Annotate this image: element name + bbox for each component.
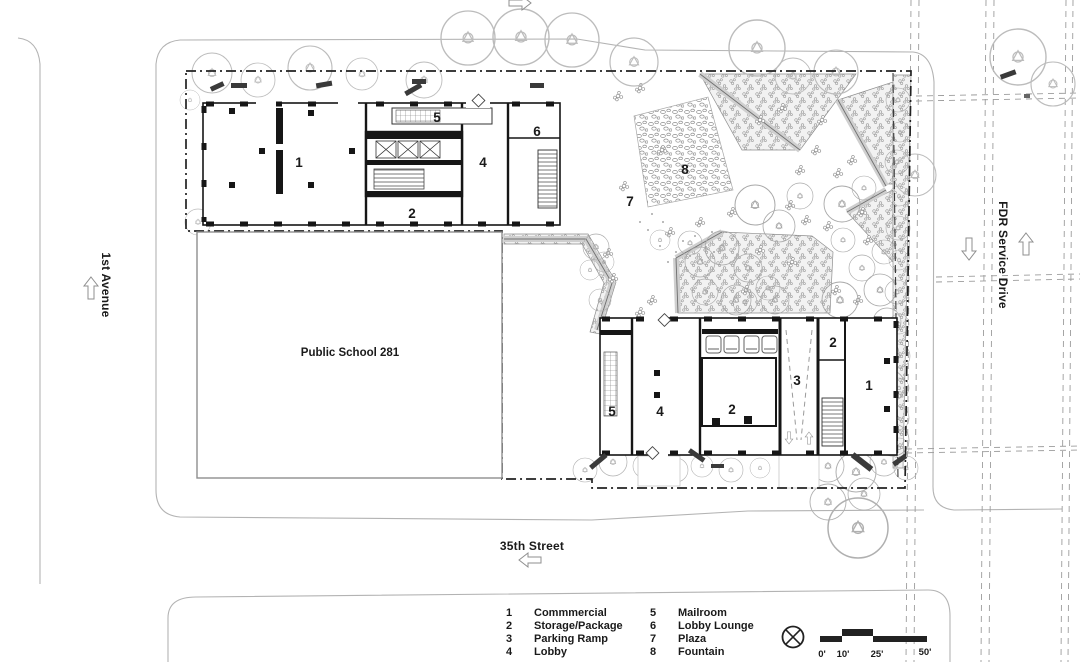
storage-room [702, 358, 776, 426]
room-label-south-2b: 2 [829, 335, 837, 350]
street-label-1st-avenue: 1st Avenue [99, 252, 113, 317]
legend-label: Parking Ramp [534, 633, 608, 645]
direction-arrow-icon-fdr-north [1019, 233, 1033, 255]
legend-label: Storage/Package [534, 620, 623, 632]
scale-bar: 0' 10' 25' 50' [818, 629, 931, 660]
scale-tick-0: 0' [818, 649, 826, 660]
site-plan-canvas: Public School 281 [0, 0, 1080, 662]
scale-tick-50: 50' [919, 647, 932, 658]
legend-label: Fountain [678, 646, 725, 658]
legend-num: 2 [506, 620, 512, 632]
legend-label: Commmercial [534, 607, 607, 619]
room-label-north-2: 2 [408, 206, 416, 221]
room-label-plaza-8: 8 [681, 162, 689, 177]
west-block-curb [18, 38, 40, 584]
room-label-north-1: 1 [295, 155, 303, 170]
legend-num: 7 [650, 633, 656, 645]
fdr-dashed-lines [906, 0, 1080, 662]
legend-num: 6 [650, 620, 656, 632]
legend-label: Plaza [678, 633, 707, 645]
room-label-north-4: 4 [479, 155, 487, 170]
room-label-south-1: 1 [865, 378, 873, 393]
site-block-curb-east [913, 52, 1062, 510]
legend-num: 3 [506, 633, 512, 645]
legend-num: 5 [650, 607, 656, 619]
room-label-south-4: 4 [656, 404, 664, 419]
scale-tick-10: 10' [837, 649, 850, 660]
south-building [600, 314, 897, 460]
room-label-plaza-7: 7 [626, 194, 634, 209]
direction-arrow-icon-fdr-south [962, 238, 976, 260]
room-label-south-5: 5 [608, 404, 616, 419]
legend-num: 8 [650, 646, 656, 658]
room-label-north-6: 6 [533, 124, 541, 139]
room-label-south-3: 3 [793, 373, 801, 388]
direction-arrow-icon-35th-street [519, 553, 541, 567]
legend-num: 4 [506, 646, 513, 658]
legend-label: Mailroom [678, 607, 727, 619]
north-arrow-icon [783, 627, 804, 648]
school-label: Public School 281 [301, 347, 400, 359]
north-stair [538, 150, 557, 208]
room-label-south-2: 2 [728, 402, 736, 417]
scale-tick-25: 25' [871, 649, 884, 660]
south-stair [822, 398, 843, 446]
school-building: Public School 281 [197, 232, 502, 478]
street-label-fdr-service-drive: FDR Service Drive [996, 201, 1010, 309]
legend-label: Lobby Lounge [678, 620, 754, 632]
north-building [203, 94, 560, 225]
street-label-35th-street: 35th Street [500, 539, 564, 553]
legend-num: 1 [506, 607, 512, 619]
room-label-north-5: 5 [433, 110, 441, 125]
legend-label: Lobby [534, 646, 568, 658]
legend: 1 Commmercial 2 Storage/Package 3 Parkin… [506, 607, 754, 658]
site-plan-svg: Public School 281 [0, 0, 1080, 662]
direction-arrow-icon-1st-avenue [84, 277, 98, 299]
